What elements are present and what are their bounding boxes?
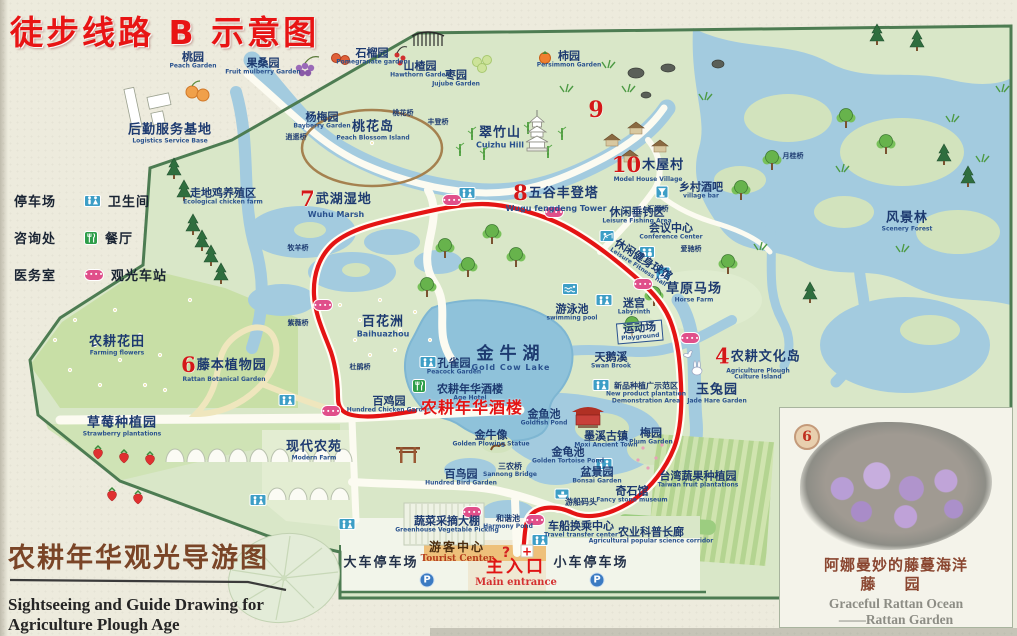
sightseeing-bus-station-icon: ∙∙∙∙: [84, 269, 104, 281]
legend-toilet-label: 卫生间: [108, 191, 150, 210]
logistics-buildings: [124, 87, 171, 128]
footer-title-en-line1: Sightseeing and Guide Drawing for: [8, 595, 308, 615]
legend-parking-label: 停车场: [14, 191, 84, 210]
vegetable-greenhouse-shape: [404, 503, 484, 545]
toilet-icon: [84, 195, 101, 207]
legend-restaurant-label: 餐厅: [105, 228, 133, 247]
temple-decoration: [572, 407, 604, 428]
map-number-badge: 9: [588, 97, 603, 123]
footer-title-zh: 农耕年华观光导游图: [8, 536, 308, 575]
legend-medical-label: 医务室: [14, 265, 84, 284]
scan-shadow: [430, 628, 1017, 636]
inset-caption-zh1: 阿娜曼妙的藤蔓海洋: [780, 554, 1012, 575]
legend-row-3: 医务室 ∙∙∙∙ 观光车站: [14, 256, 167, 293]
inset-caption-zh2: 藤 园: [780, 573, 1012, 594]
inset-caption-en1: Graceful Rattan Ocean: [780, 596, 1012, 613]
inset-caption-en2: ——Rattan Garden: [780, 612, 1012, 629]
footer-underline: [8, 575, 308, 591]
inset-number-badge: 6: [794, 424, 820, 450]
page-title: 徒步线路 B 示意图: [10, 6, 319, 54]
legend-bus-station-label: 观光车站: [111, 265, 167, 284]
rattan-garden-inset: 6 阿娜曼妙的藤蔓海洋 藤 园 Graceful Rattan Ocean ——…: [779, 407, 1013, 628]
legend-row-2: 咨询处 餐厅: [14, 219, 167, 256]
footer-title-en-line2: Agriculture Plough Age: [8, 615, 308, 635]
map-footer-title-block: 农耕年华观光导游图 Sightseeing and Guide Drawing …: [8, 536, 308, 635]
legend-information-label: 咨询处: [14, 228, 84, 247]
hiking-route-map-page: 徒步线路 B 示意图 停车场 卫生间 咨询处 餐厅 医务室 ∙∙∙∙ 观光车站 …: [0, 0, 1017, 636]
rattan-flowers-photo: [800, 422, 992, 550]
legend-row-1: 停车场 卫生间: [14, 182, 167, 219]
restaurant-icon: [84, 231, 98, 245]
map-legend: 停车场 卫生间 咨询处 餐厅 医务室 ∙∙∙∙ 观光车站: [14, 182, 167, 293]
